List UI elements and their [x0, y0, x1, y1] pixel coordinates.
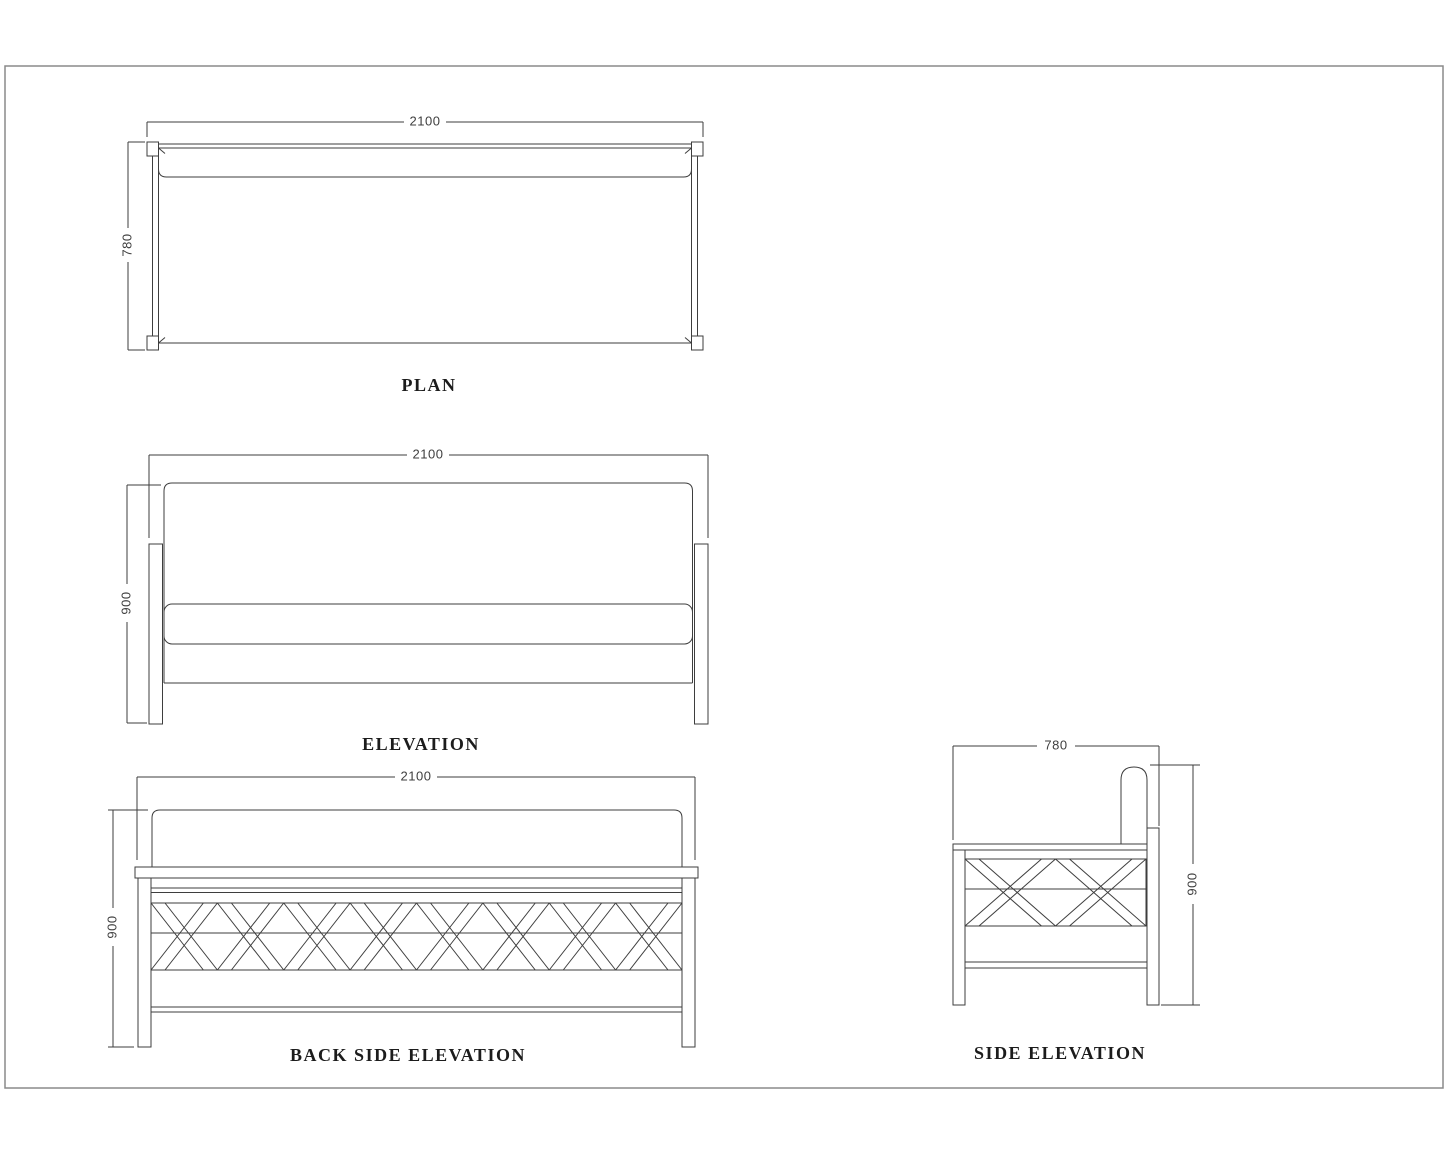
backrest-front: [164, 483, 693, 683]
x-brace-pattern: [965, 859, 1146, 926]
leg-bottom-left: [147, 336, 159, 350]
leg-top-right: [692, 142, 704, 156]
arm-rail: [953, 844, 1147, 850]
backrest-back: [152, 810, 682, 867]
corner-tick: [685, 338, 692, 344]
back-elevation-view: 2100 900 BACK SIDE ELEVATION: [104, 768, 698, 1065]
leg-bottom-right: [692, 336, 704, 350]
backrest-top-view: [159, 148, 692, 177]
right-leg: [695, 544, 709, 724]
plan-depth-dim-value: 780: [119, 233, 134, 256]
left-leg: [138, 878, 151, 1047]
bottom-rail: [965, 962, 1147, 968]
elevation-view: 2100 900 ELEVATION: [118, 446, 708, 754]
corner-tick: [159, 338, 166, 344]
corner-tick: [159, 148, 166, 154]
side-depth-dim-value: 780: [1044, 737, 1067, 752]
plan-title: PLAN: [402, 375, 457, 395]
plan-width-dim-value: 2100: [410, 113, 441, 128]
plan-view: 2100 780 PLAN: [119, 113, 703, 395]
lattice-panel: [151, 903, 682, 970]
corner-tick: [685, 148, 692, 154]
front-leg: [953, 850, 965, 1005]
leg-top-left: [147, 142, 159, 156]
seat-cushion: [164, 604, 693, 644]
lattice-panel: [965, 859, 1146, 926]
backrest-post: [1121, 767, 1147, 844]
side-elevation-view: 780 900 SIDE ELEVATION: [953, 737, 1200, 1063]
back-width-dimension: [137, 777, 695, 860]
sheet-border: [5, 66, 1443, 1088]
back-width-dim-value: 2100: [401, 768, 432, 783]
cad-sheet: 2100 780 PLAN 2100 900 ELEVATION: [0, 0, 1445, 1156]
elevation-width-dimension: [149, 455, 708, 538]
x-brace-pattern: [151, 903, 682, 970]
back-elevation-title: BACK SIDE ELEVATION: [290, 1045, 526, 1065]
right-leg: [682, 878, 695, 1047]
elevation-title: ELEVATION: [362, 734, 480, 754]
top-rail: [135, 867, 698, 878]
back-height-dim-value: 900: [104, 915, 119, 938]
elevation-width-dim-value: 2100: [413, 446, 444, 461]
rear-leg: [1147, 828, 1159, 1005]
side-height-dim-value: 900: [1184, 872, 1199, 895]
left-leg: [149, 544, 163, 724]
elevation-height-dim-value: 900: [118, 591, 133, 614]
side-elevation-title: SIDE ELEVATION: [974, 1043, 1146, 1063]
side-depth-dimension: [953, 746, 1159, 840]
